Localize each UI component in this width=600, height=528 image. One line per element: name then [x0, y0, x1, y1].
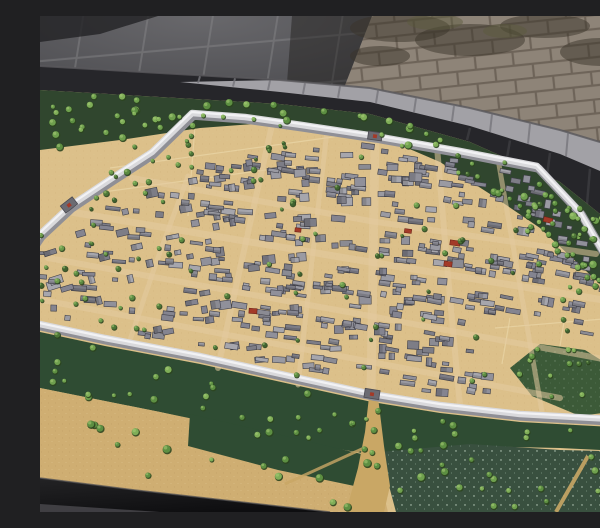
scene-svg: [40, 16, 600, 512]
museum-diorama-photo: [40, 16, 600, 512]
